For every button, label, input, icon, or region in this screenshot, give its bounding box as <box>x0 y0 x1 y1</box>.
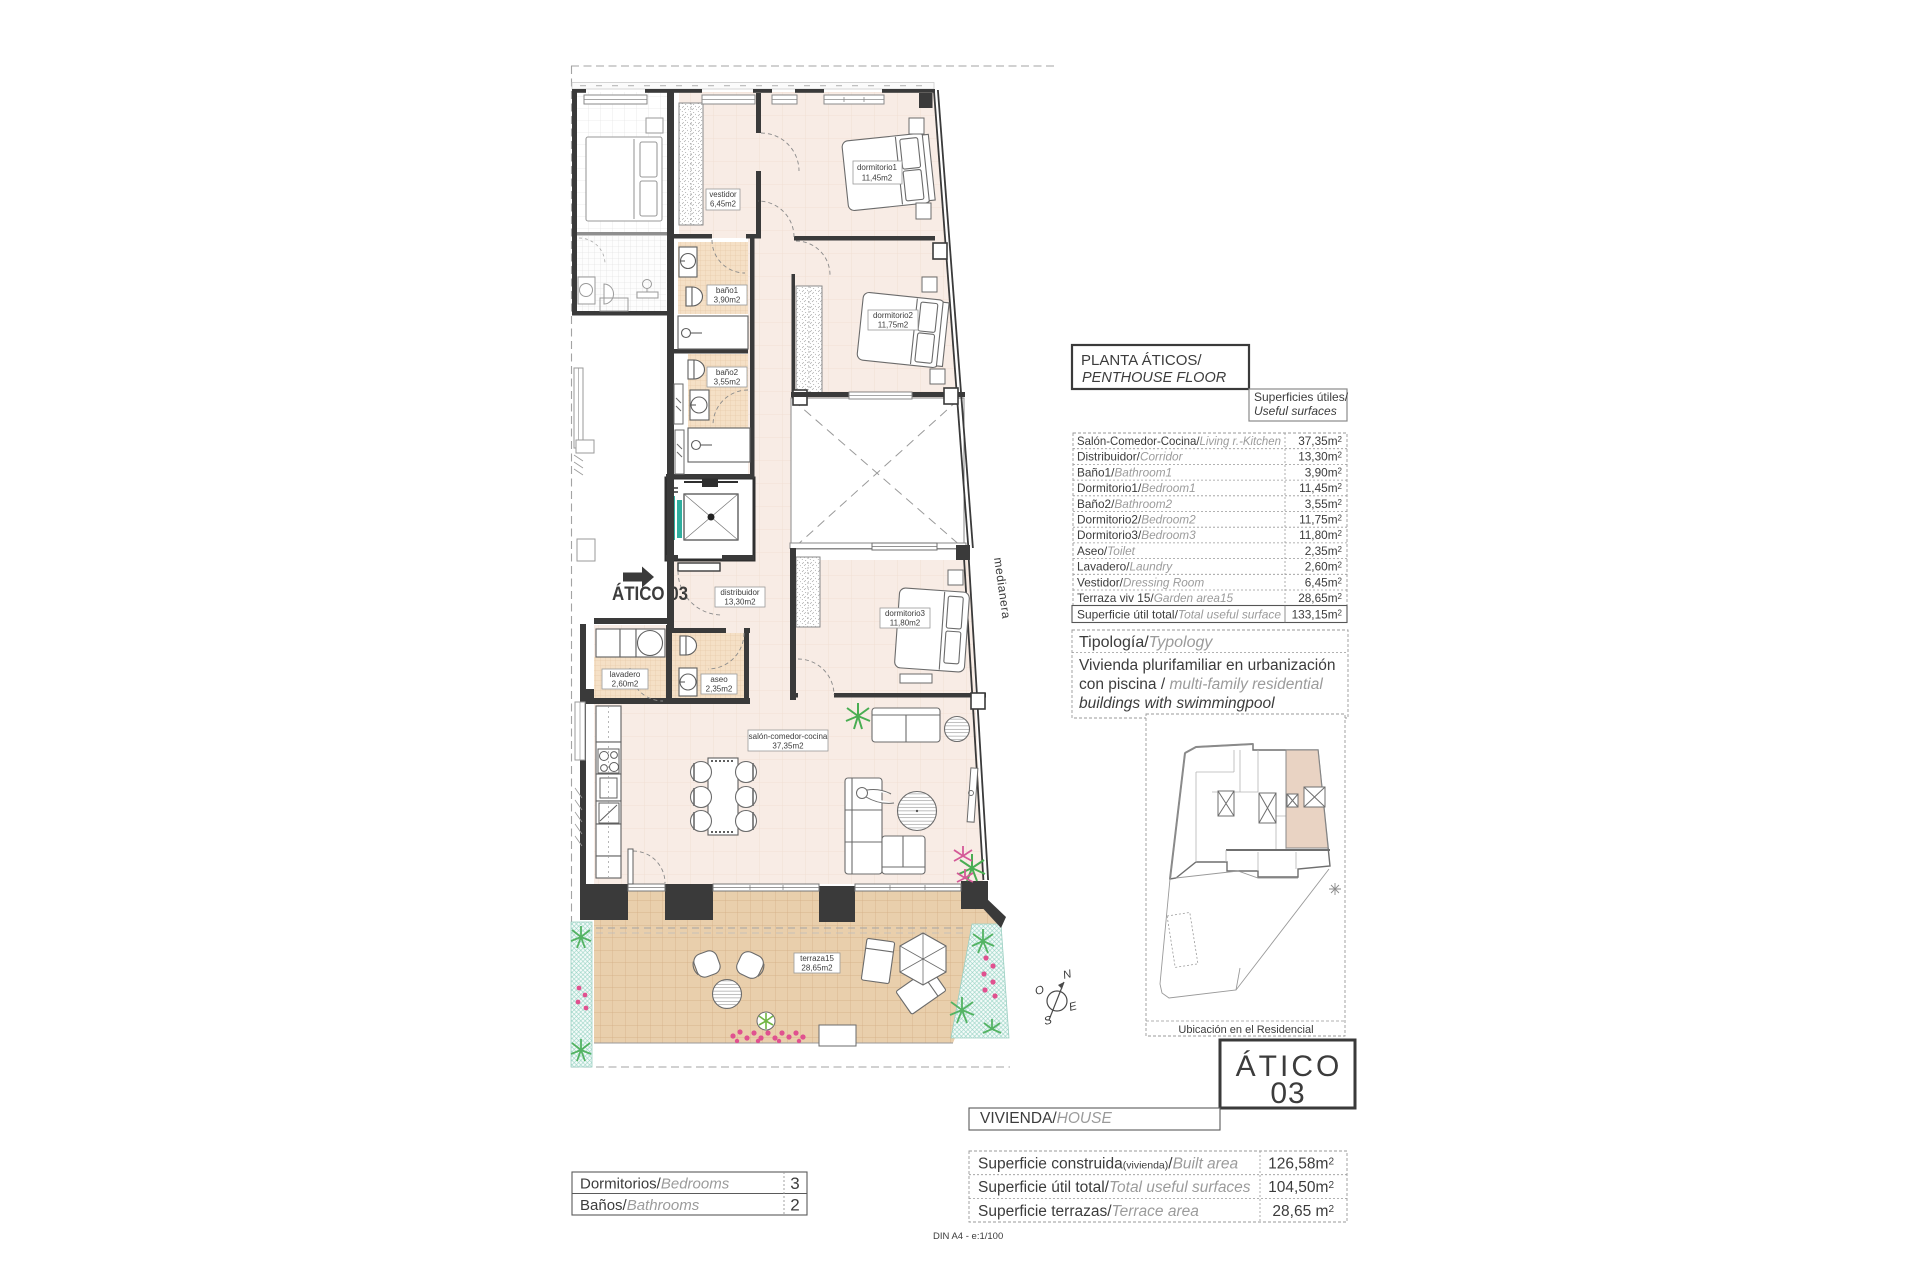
svg-text:2,60m2: 2,60m2 <box>612 680 639 689</box>
svg-text:Tipología/Typology: Tipología/Typology <box>1079 634 1213 651</box>
svg-text:3,55m2: 3,55m2 <box>1305 497 1343 511</box>
svg-text:2,60m2: 2,60m2 <box>1305 560 1343 574</box>
svg-text:Ubicación en el Residencial: Ubicación en el Residencial <box>1178 1024 1313 1036</box>
svg-text:11,75m2: 11,75m2 <box>1299 513 1342 527</box>
svg-text:28,65 m2: 28,65 m2 <box>1272 1203 1334 1220</box>
svg-text:Useful surfaces: Useful surfaces <box>1254 404 1337 418</box>
svg-text:Aseo/Toilet: Aseo/Toilet <box>1077 544 1136 558</box>
svg-text:Vivienda plurifamiliar en urba: Vivienda plurifamiliar en urbanización <box>1079 657 1335 674</box>
svg-text:133,15m2: 133,15m2 <box>1292 607 1343 621</box>
svg-text:Dormitorio2/Bedroom2: Dormitorio2/Bedroom2 <box>1077 513 1196 527</box>
svg-text:3: 3 <box>790 1174 799 1193</box>
svg-text:Baños/Bathrooms: Baños/Bathrooms <box>580 1197 700 1214</box>
svg-text:dormitorio3: dormitorio3 <box>885 609 926 618</box>
svg-text:28,65m2: 28,65m2 <box>1298 591 1342 605</box>
svg-text:2: 2 <box>790 1196 799 1215</box>
svg-text:aseo: aseo <box>710 675 728 684</box>
svg-text:3,90m2: 3,90m2 <box>714 296 741 305</box>
svg-text:37,35m2: 37,35m2 <box>1298 434 1342 448</box>
svg-text:salón-comedor-cocina: salón-comedor-cocina <box>749 732 828 741</box>
svg-text:terraza15: terraza15 <box>800 954 834 963</box>
svg-text:buildings with swimmingpool: buildings with swimmingpool <box>1079 695 1275 712</box>
svg-text:11,45m2: 11,45m2 <box>1299 481 1342 495</box>
svg-text:Superficies útiles/: Superficies útiles/ <box>1254 390 1349 404</box>
svg-text:11,80m2: 11,80m2 <box>890 619 921 628</box>
svg-text:con piscina / multi-family re: con piscina / multi-family residential <box>1079 676 1323 693</box>
svg-text:distribuidor: distribuidor <box>720 588 759 597</box>
svg-text:lavadero: lavadero <box>610 670 641 679</box>
svg-text:6,45m2: 6,45m2 <box>1305 575 1343 589</box>
svg-text:2,35m2: 2,35m2 <box>706 685 733 694</box>
svg-text:Dormitorios/Bedrooms: Dormitorios/Bedrooms <box>580 1176 730 1193</box>
svg-text:Superficie útil total/Total us: Superficie útil total/Total useful surfa… <box>1077 607 1281 621</box>
svg-text:baño1: baño1 <box>716 286 739 295</box>
svg-text:dormitorio1: dormitorio1 <box>857 163 898 172</box>
svg-text:11,45m2: 11,45m2 <box>862 174 893 183</box>
svg-text:Distribuidor/Corridor: Distribuidor/Corridor <box>1077 450 1184 464</box>
svg-text:13,30m2: 13,30m2 <box>724 598 756 607</box>
svg-text:Baño2/Bathroom2: Baño2/Bathroom2 <box>1077 497 1173 511</box>
svg-text:Dormitorio1/Bedroom1: Dormitorio1/Bedroom1 <box>1077 481 1196 495</box>
svg-text:VIVIENDA/HOUSE: VIVIENDA/HOUSE <box>980 1110 1112 1127</box>
svg-text:baño2: baño2 <box>716 368 739 377</box>
svg-text:3,90m2: 3,90m2 <box>1305 465 1343 479</box>
svg-text:Vestidor/Dressing Room: Vestidor/Dressing Room <box>1077 575 1204 589</box>
svg-text:ÁTICO 03: ÁTICO 03 <box>612 583 688 605</box>
svg-text:Superficie útil total/Total us: Superficie útil total/Total useful surfa… <box>978 1179 1251 1196</box>
svg-text:vestidor: vestidor <box>709 190 737 199</box>
svg-text:Superficie construida(vivienda: Superficie construida(vivienda)/Built ar… <box>978 1156 1238 1173</box>
svg-text:Terraza viv 15/Garden area15: Terraza viv 15/Garden area15 <box>1077 591 1234 605</box>
svg-text:11,80m2: 11,80m2 <box>1299 528 1342 542</box>
svg-text:6,45m2: 6,45m2 <box>710 200 736 209</box>
svg-text:28,65m2: 28,65m2 <box>801 964 833 973</box>
svg-text:Dormitorio3/Bedroom3: Dormitorio3/Bedroom3 <box>1077 528 1196 542</box>
svg-text:11,75m2: 11,75m2 <box>878 321 909 330</box>
svg-text:Superficie terrazas/Terrace ar: Superficie terrazas/Terrace area <box>978 1203 1199 1220</box>
svg-text:13,30m2: 13,30m2 <box>1298 450 1342 464</box>
svg-text:2,35m2: 2,35m2 <box>1305 544 1343 558</box>
svg-text:DIN A4 - e:1/100: DIN A4 - e:1/100 <box>933 1231 1003 1242</box>
svg-text:Salón-Comedor-Cocina/Living r.: Salón-Comedor-Cocina/Living r.-Kitchen <box>1077 434 1281 448</box>
svg-text:3,55m2: 3,55m2 <box>714 378 741 387</box>
svg-text:126,58m2: 126,58m2 <box>1268 1156 1334 1173</box>
svg-text:Lavadero/Laundry: Lavadero/Laundry <box>1077 560 1173 574</box>
svg-text:PLANTA ÁTICOS/: PLANTA ÁTICOS/ <box>1081 352 1202 369</box>
svg-text:Baño1/Bathroom1: Baño1/Bathroom1 <box>1077 465 1172 479</box>
svg-text:104,50m2: 104,50m2 <box>1268 1179 1334 1196</box>
svg-text:37,35m2: 37,35m2 <box>772 742 804 751</box>
svg-text:03: 03 <box>1270 1077 1305 1110</box>
svg-text:dormitorio2: dormitorio2 <box>873 311 914 320</box>
svg-text:PENTHOUSE FLOOR: PENTHOUSE FLOOR <box>1082 370 1227 386</box>
